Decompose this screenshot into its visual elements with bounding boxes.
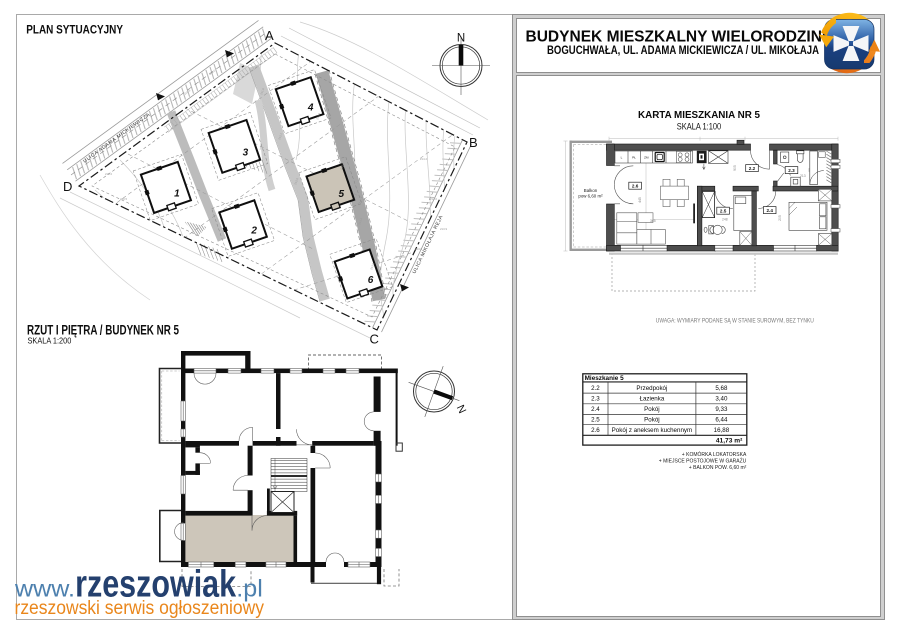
svg-text:Pokój z aneksem kuchennym: Pokój z aneksem kuchennym <box>612 427 692 434</box>
svg-text:UWAGA: WYMIARY PODANE SĄ W STA: UWAGA: WYMIARY PODANE SĄ W STANIE SUROWY… <box>656 318 814 325</box>
svg-text:+ KOMÓRKA LOKATORSKA: + KOMÓRKA LOKATORSKA <box>682 451 747 458</box>
svg-text:16,88: 16,88 <box>714 427 730 434</box>
svg-text:2.6: 2.6 <box>591 427 600 434</box>
svg-text:BUDYNEK MIESZKALNY WIELORODZIN: BUDYNEK MIESZKALNY WIELORODZINNY <box>526 28 844 45</box>
svg-text:Pokój: Pokój <box>644 406 659 413</box>
svg-text:+ MIEJSCE POSTOJOWE W GARAŻU: + MIEJSCE POSTOJOWE W GARAŻU <box>659 458 747 465</box>
svg-text:2.5: 2.5 <box>591 417 600 424</box>
svg-text:9,33: 9,33 <box>715 406 728 413</box>
svg-text:SKALA 1:100: SKALA 1:100 <box>677 121 721 131</box>
svg-text:Łazienka: Łazienka <box>640 396 665 403</box>
svg-text:+ BALKON POW. 6,60 m²: + BALKON POW. 6,60 m² <box>689 465 747 471</box>
svg-text:rzeszowski serwis ogłoszeniowy: rzeszowski serwis ogłoszeniowy <box>15 598 265 619</box>
svg-text:Przedpokój: Przedpokój <box>636 385 667 392</box>
svg-text:SKALA 1:200: SKALA 1:200 <box>28 336 72 346</box>
svg-text:2.4: 2.4 <box>591 406 600 413</box>
svg-text:PLAN SYTUACYJNY: PLAN SYTUACYJNY <box>26 24 123 36</box>
svg-text:Pokój: Pokój <box>644 417 659 424</box>
svg-text:2.3: 2.3 <box>591 396 600 403</box>
svg-text:Mieszkanie 5: Mieszkanie 5 <box>585 375 625 382</box>
svg-text:KARTA MIESZKANIA NR 5: KARTA MIESZKANIA NR 5 <box>638 109 760 121</box>
svg-text:2.2: 2.2 <box>591 385 600 392</box>
svg-text:BOGUCHWAŁA, UL. ADAMA MICKIEWI: BOGUCHWAŁA, UL. ADAMA MICKIEWICZA / UL. … <box>547 45 819 57</box>
svg-text:41,73 m²: 41,73 m² <box>716 438 743 445</box>
svg-text:5,68: 5,68 <box>715 385 728 392</box>
svg-text:6,44: 6,44 <box>715 417 728 424</box>
svg-text:3,40: 3,40 <box>715 396 728 403</box>
